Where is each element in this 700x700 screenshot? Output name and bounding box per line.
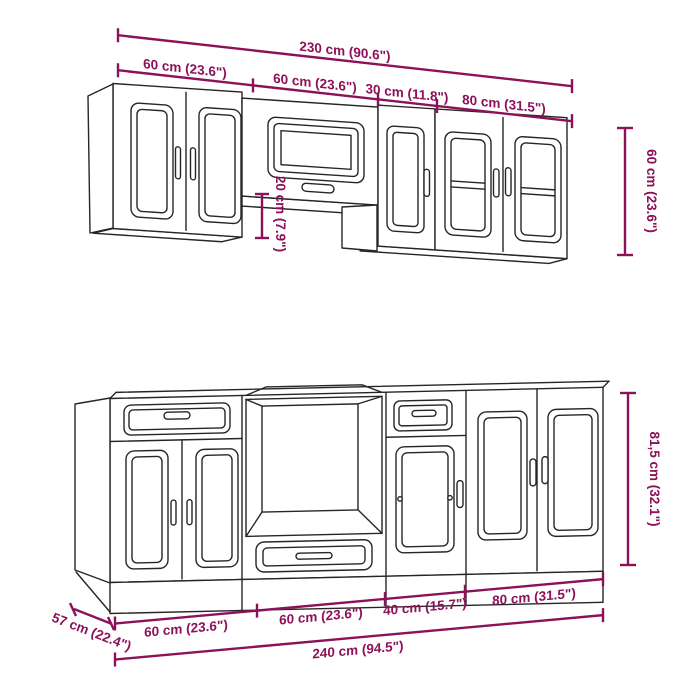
lower-cab1-left-handle — [171, 500, 176, 525]
lower-total-width-label: 240 cm (94.5") — [312, 638, 403, 661]
lower-cab3-hinge-right — [448, 496, 452, 500]
upper-cab3-side-panel — [342, 205, 377, 251]
upper-left-side-panel — [88, 84, 113, 233]
upper-cab4-left-handle — [494, 169, 500, 197]
lower-height-dimension: 81,5 cm (32.1") — [620, 393, 662, 565]
upper-cab4-right-handle — [506, 168, 512, 196]
lower-cab1-drawer-handle — [164, 412, 190, 420]
lower-left-side-panel — [75, 398, 110, 583]
upper-height-label: 60 cm (23.6") — [644, 149, 659, 233]
lower-cabinet-row — [110, 379, 609, 613]
kitchen-cabinet-dimension-diagram: 230 cm (90.6") 60 cm (23.6") 60 cm (23.6… — [0, 0, 700, 700]
lower-cab4-right-handle — [542, 457, 548, 484]
upper-height-dimension: 60 cm (23.6") — [617, 128, 659, 255]
lower-cab2-drawer-handle — [296, 552, 332, 559]
upper-glass-door-frame — [268, 117, 364, 183]
upper-glass-door-handle — [302, 183, 334, 193]
lower-cab4-left-handle — [530, 459, 536, 486]
countertop-left-corner — [110, 392, 116, 398]
upper-gap-label: 20 cm (7.9") — [273, 176, 288, 252]
upper-cab1-right-handle — [191, 148, 196, 180]
lower-cab3-drawer-handle — [412, 410, 436, 417]
lower-cab1-right-handle — [187, 500, 192, 525]
lower-cab3-handle — [457, 480, 463, 507]
product-dimension-image: 230 cm (90.6") 60 cm (23.6") 60 cm (23.6… — [0, 0, 700, 700]
upper-cab1-left-handle — [176, 147, 181, 179]
countertop-right-corner — [603, 381, 609, 387]
upper-cab3-handle — [424, 169, 430, 196]
lower-height-label: 81,5 cm (32.1") — [647, 432, 662, 527]
lower-cab3-hinge-left — [398, 497, 402, 501]
